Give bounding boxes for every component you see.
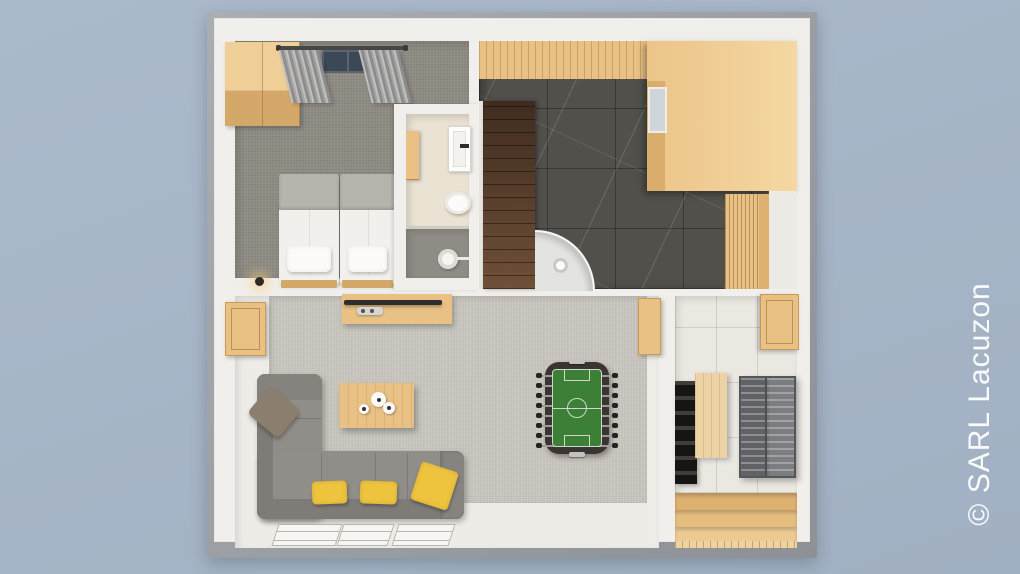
goal-box <box>564 370 590 381</box>
tv <box>344 300 442 305</box>
bedside-lamp <box>255 277 264 286</box>
slatted-bench <box>725 194 759 289</box>
remote-control <box>357 307 383 315</box>
plank-floor <box>675 541 797 548</box>
bed-blanket <box>279 174 339 210</box>
light-wood-staircase <box>675 493 797 548</box>
bathroom-shower-floor <box>406 228 469 278</box>
yellow-cushion <box>360 480 398 504</box>
building-walls <box>214 18 810 542</box>
ball-return <box>569 452 585 457</box>
bed-blanket <box>340 174 395 210</box>
floor-plan <box>207 12 817 558</box>
yellow-cushion <box>312 480 348 504</box>
bench-edge <box>759 194 769 289</box>
ball-return <box>569 359 585 364</box>
stair-step <box>675 510 797 527</box>
copyright-watermark: © SARL Lacuzon <box>963 282 997 525</box>
metal-storage-rack <box>739 376 796 478</box>
wood-plank-wall <box>479 41 665 79</box>
floor-mat <box>271 524 342 546</box>
wall-cabinet <box>760 294 799 350</box>
wall-cabinet-right <box>638 298 661 355</box>
dark-wood-staircase <box>483 101 535 289</box>
bed-pillow <box>348 246 387 272</box>
bathroom-cabinet <box>406 131 419 180</box>
standing-table <box>695 373 727 458</box>
spa-room <box>479 41 797 289</box>
bed-pillow <box>287 246 331 272</box>
bed-frame <box>342 280 393 288</box>
scene-background: © SARL Lacuzon <box>0 0 1020 574</box>
floor-mat <box>336 524 394 546</box>
toilet <box>445 192 471 214</box>
twin-bed-left <box>279 174 339 284</box>
bed-frame <box>281 280 337 288</box>
shower-arm <box>457 257 470 260</box>
wine-rack <box>675 381 697 484</box>
vase <box>383 402 395 414</box>
living-room <box>235 296 659 548</box>
twin-bed-right <box>340 174 395 284</box>
coffee-table <box>339 383 414 428</box>
bathroom-divider <box>406 226 469 229</box>
washbasin <box>448 126 471 172</box>
foosball-table <box>545 362 609 454</box>
wall-cabinet-left <box>225 302 266 356</box>
shower-head <box>553 258 568 273</box>
vase <box>359 404 369 414</box>
floor-mat <box>391 524 455 546</box>
shower-drain <box>438 249 458 269</box>
spa-walkway <box>769 191 797 289</box>
cellar-room <box>675 296 797 548</box>
foosball-pitch <box>552 369 602 447</box>
stair-step <box>675 493 797 510</box>
sauna-window <box>648 87 667 133</box>
curved-shower-enclosure <box>535 230 595 291</box>
tap <box>460 144 469 148</box>
sauna-cabin <box>647 41 797 191</box>
stair-step <box>675 527 797 541</box>
goal-box <box>564 435 590 446</box>
